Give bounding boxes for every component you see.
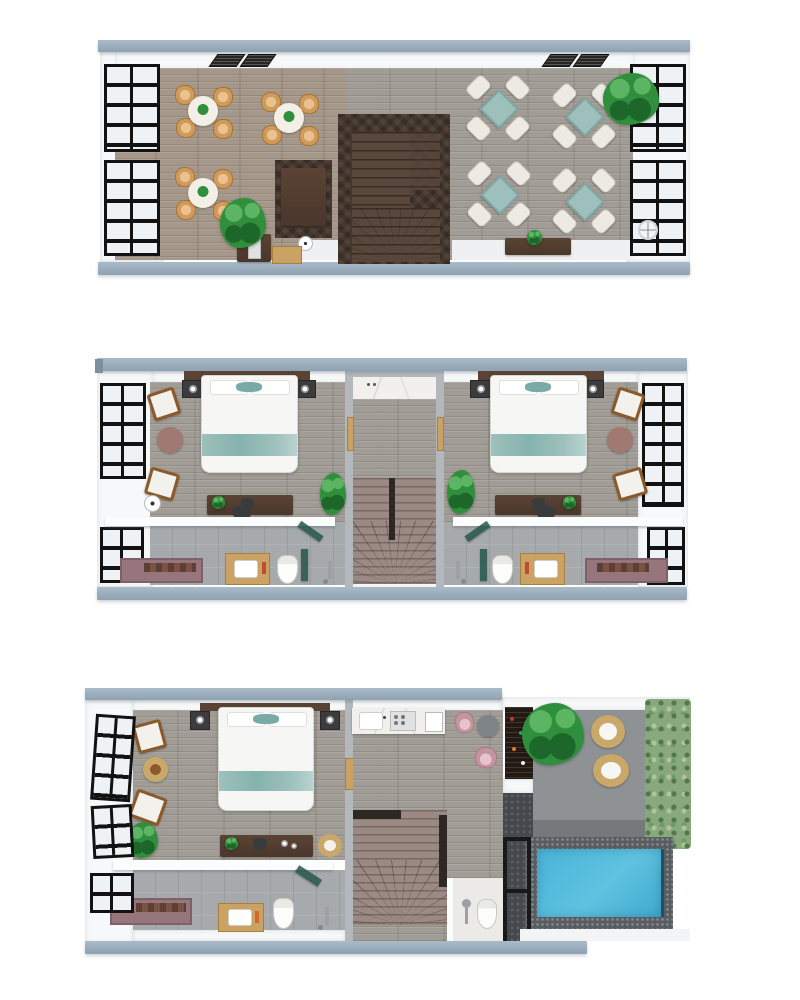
double-bed <box>218 707 314 811</box>
double-bed <box>490 375 587 473</box>
burner <box>401 721 405 725</box>
bench-seat <box>465 159 493 187</box>
floor-plan-canvas <box>0 0 800 1000</box>
nightstand <box>320 711 340 730</box>
desk-decor <box>281 840 288 847</box>
stair-winders <box>353 860 447 925</box>
floor-middle-bedrooms <box>95 355 693 605</box>
window <box>104 64 160 152</box>
kitchen-counter <box>352 708 445 734</box>
dining-set <box>175 85 231 137</box>
marble-landing <box>353 377 436 399</box>
burner <box>394 721 398 725</box>
teal-throw <box>253 714 279 724</box>
towel <box>255 911 259 923</box>
stair-winders <box>353 521 436 584</box>
pool-threshold <box>520 929 690 941</box>
shower-head <box>456 561 460 579</box>
sink <box>228 909 252 926</box>
floor-top-restaurant <box>98 38 692 278</box>
toilet <box>492 555 513 584</box>
jute-ottoman <box>143 757 168 782</box>
tall-plant <box>447 470 475 514</box>
potted-plant <box>603 73 659 125</box>
facade-beam-bottom <box>85 941 587 954</box>
floor-drain <box>318 925 323 930</box>
pergola-bar <box>507 889 527 893</box>
shower-head <box>328 561 332 579</box>
toilet <box>277 555 298 584</box>
ottoman <box>157 427 183 453</box>
table-lamp <box>301 385 309 393</box>
ottoman <box>607 427 633 453</box>
beam-cap <box>95 359 103 373</box>
desk-monitor <box>253 838 267 850</box>
shower-glass <box>301 549 308 581</box>
bench-decor <box>597 563 649 572</box>
nightstand <box>190 711 210 730</box>
vanity <box>225 553 270 585</box>
double-bed <box>201 375 298 473</box>
bottle <box>512 747 516 751</box>
ceiling-fan-icon <box>638 220 658 240</box>
bench-seat <box>550 81 578 109</box>
rattan-chair <box>299 126 319 146</box>
sink <box>234 560 258 578</box>
appliance <box>425 712 443 732</box>
terrace-doorway <box>503 779 533 793</box>
window <box>90 873 134 913</box>
facade-beam-bottom <box>97 587 687 600</box>
plunge-pool <box>537 849 664 917</box>
shower-pole <box>465 908 468 924</box>
mauve-bench <box>585 558 668 583</box>
bottle <box>521 761 525 765</box>
window <box>642 383 684 507</box>
table-lamp <box>477 385 485 393</box>
toilet <box>273 898 294 929</box>
window <box>630 160 686 256</box>
jute-rug <box>318 834 342 857</box>
stair-landing <box>410 132 440 190</box>
window <box>91 804 135 859</box>
fixture-dot <box>367 383 370 386</box>
door-jamb <box>437 417 444 451</box>
desk-plant <box>212 496 225 509</box>
green-wall <box>645 699 691 849</box>
nightstand <box>470 380 492 398</box>
floor-lamp <box>144 495 161 512</box>
teal-throw <box>525 382 551 392</box>
mauve-bench <box>120 558 203 583</box>
bench-seat <box>550 166 578 194</box>
dining-set <box>261 92 317 144</box>
table-lamp <box>326 716 334 724</box>
fixture-dot <box>373 383 376 386</box>
facade-beam-top <box>85 688 502 700</box>
vanity <box>520 553 565 585</box>
window <box>100 383 146 479</box>
stair-core <box>345 371 444 587</box>
stair-winders <box>352 208 440 262</box>
bed-runner <box>219 771 313 791</box>
bench-seat <box>464 73 492 101</box>
bench-seating-group <box>466 161 530 225</box>
table-lamp <box>589 385 597 393</box>
floor-ground-suite-pool <box>85 685 695 957</box>
bench-seating-group <box>551 168 615 232</box>
dining-table <box>188 178 218 208</box>
rattan-lounge-chair <box>593 754 629 787</box>
bed-runner <box>202 434 297 456</box>
burner <box>394 715 398 719</box>
service-cart <box>272 246 302 264</box>
window <box>90 714 136 803</box>
floor-drain <box>323 579 328 584</box>
vanity <box>218 903 264 932</box>
bed-runner <box>491 434 586 456</box>
facade-beam-top <box>97 358 687 371</box>
kitchen-sink <box>359 712 383 730</box>
shower-head <box>325 907 329 925</box>
desk-decor <box>291 843 297 849</box>
shower-glass <box>480 549 487 581</box>
large-potted-plant <box>522 703 584 765</box>
faucet <box>383 716 386 719</box>
rattan-chair <box>213 119 233 139</box>
rattan-lounge-chair <box>591 715 625 748</box>
desk-plant <box>563 496 576 509</box>
bench-decor <box>144 563 196 572</box>
reception-desk <box>281 168 326 226</box>
stair-rail <box>353 810 401 819</box>
dining-table <box>188 96 218 126</box>
bottle <box>510 717 514 721</box>
toilet <box>477 899 497 929</box>
staircase-dark <box>338 114 450 264</box>
corridor-floor <box>353 399 436 478</box>
desk-plant <box>225 837 238 850</box>
bench-decor <box>136 903 186 912</box>
dining-table <box>274 103 304 133</box>
floor-drain <box>461 579 466 584</box>
table-lamp <box>189 385 197 393</box>
towel <box>262 562 266 574</box>
bistro-table <box>477 715 499 737</box>
tall-plant <box>320 473 346 515</box>
partition-wall <box>345 700 353 941</box>
burner <box>401 715 405 719</box>
console-plant <box>527 230 542 245</box>
teal-throw <box>236 382 262 392</box>
shower-head <box>462 899 471 908</box>
potted-plant <box>220 198 266 248</box>
window <box>104 160 160 256</box>
facade-beam-top <box>98 40 690 52</box>
table-lamp <box>196 716 204 724</box>
bench-seating-group <box>465 75 529 139</box>
sink <box>534 560 558 578</box>
towel <box>525 562 529 574</box>
door-jamb <box>347 417 354 451</box>
